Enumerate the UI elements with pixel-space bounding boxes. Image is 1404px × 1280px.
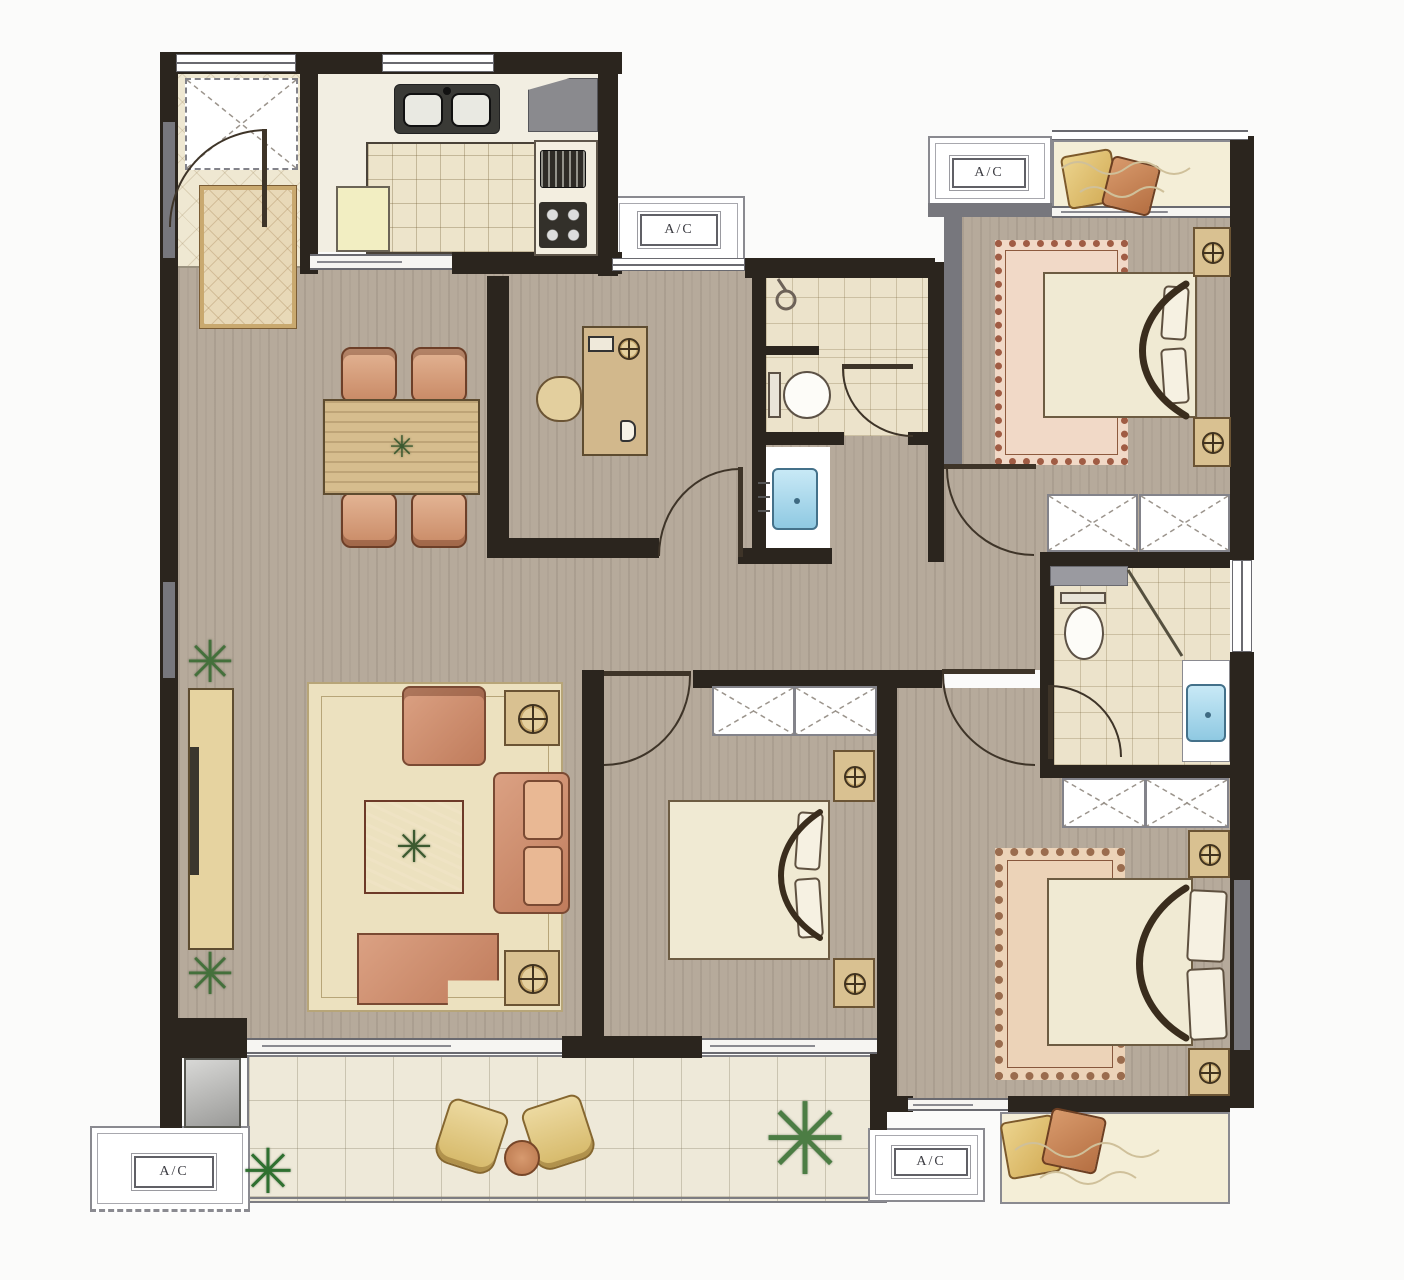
sliding-door-kitchen — [310, 254, 452, 270]
wall-left-gray-1 — [163, 122, 175, 258]
wall-trbed-left — [944, 205, 962, 468]
lamp-icon — [518, 964, 548, 994]
side-table-2 — [504, 950, 560, 1006]
master-pillow-2 — [1186, 967, 1228, 1041]
wall-hall-bath-right — [928, 262, 944, 562]
ac-label-bottom-left: A/C — [134, 1156, 214, 1188]
wall-left-bottom — [160, 1058, 182, 1128]
trbed-pillow-2 — [1160, 347, 1190, 405]
coffee-table-plant-icon: ✳ — [396, 826, 433, 870]
bathroom-sink-central — [772, 468, 818, 530]
trbed-pillow-1 — [1160, 285, 1190, 341]
wall-bath-bottom-a — [752, 432, 844, 445]
plant-icon: ✳ — [242, 1141, 294, 1203]
rbath-shelf — [1050, 566, 1128, 586]
wardrobe-midbed-1 — [712, 686, 795, 736]
faucet-icon — [443, 87, 451, 95]
lamp-icon — [1199, 844, 1221, 866]
balcony-round-table — [504, 1140, 540, 1176]
dining-chair-1 — [341, 347, 397, 403]
side-table-1 — [504, 690, 560, 746]
kitchen-hood-icon — [540, 150, 586, 188]
wall-bath-divider — [763, 346, 819, 355]
palm-plant-icon: ✳ — [763, 1090, 847, 1190]
floor-plan: ✳ ✳ ✳ ✳ ✳ — [0, 0, 1404, 1280]
midbed-pillow-1 — [794, 811, 824, 871]
wall-left-gray-2 — [163, 582, 175, 678]
wall-study-bottom — [487, 538, 659, 558]
toilet-bowl-right — [1064, 606, 1104, 660]
monitor-icon — [588, 336, 614, 352]
water-heater — [184, 1058, 241, 1128]
bathroom-sink-right — [1186, 684, 1226, 742]
lamp-icon — [844, 973, 866, 995]
wall-midbed-left — [582, 670, 604, 1042]
window-rbath-east — [1232, 560, 1252, 652]
master-balcony-cushion-2 — [1041, 1107, 1108, 1175]
midbed-nightstand-2 — [833, 958, 875, 1008]
kitchen-stove-icon — [539, 202, 587, 248]
plant-icon: ✳ — [186, 945, 235, 1003]
ac-label-text: A/C — [974, 165, 1003, 181]
plant-icon: ✳ — [186, 633, 235, 691]
wardrobe-trbed-1 — [1047, 494, 1138, 552]
window-study-north — [612, 258, 745, 271]
sofa-cushion — [523, 780, 563, 840]
dining-chair-2 — [411, 347, 467, 403]
sliding-door-living-balcony — [247, 1038, 562, 1054]
towel-bars-icon — [758, 478, 770, 518]
master-bed — [1047, 878, 1193, 1046]
wardrobe-master-2 — [1145, 778, 1229, 828]
toilet-tank-central — [768, 372, 781, 418]
centerpiece-plant-icon: ✳ — [389, 433, 414, 463]
wall-master-top — [897, 670, 942, 688]
ac-label-bottom-right: A/C — [894, 1148, 968, 1176]
ac-label-top-right: A/C — [952, 158, 1026, 188]
wall-rbath-bottom — [1040, 765, 1230, 778]
trbed-nightstand-1 — [1193, 227, 1231, 277]
midbed-pillow-2 — [794, 877, 824, 939]
wall-balcony-right-stub — [870, 1052, 887, 1130]
wall-midbed-bottom — [562, 1036, 702, 1058]
wall-bath-top — [745, 258, 935, 278]
window-top-kitchen — [382, 54, 494, 72]
wall-balcony-left-block — [160, 1018, 247, 1058]
wall-study-left — [487, 276, 509, 558]
midbed-nightstand-1 — [833, 750, 875, 802]
lamp-icon — [518, 704, 548, 734]
master-nightstand-2 — [1188, 1048, 1230, 1096]
sliding-door-master-balcony — [908, 1098, 1008, 1111]
wall-entry-kitchen — [300, 74, 318, 274]
wardrobe-trbed-2 — [1139, 494, 1230, 552]
window-top-entry — [176, 54, 296, 72]
lamp-icon — [1199, 1062, 1221, 1084]
lamp-icon — [1202, 242, 1224, 264]
desk-lamp-icon — [618, 338, 640, 360]
railing-balcony-top-right — [1052, 130, 1248, 140]
kitchen-cabinet-left — [336, 186, 390, 252]
wall-midbed-right — [877, 670, 897, 1110]
lamp-icon — [844, 766, 866, 788]
ac-label-text: A/C — [916, 1154, 945, 1170]
ac-label-top-middle: A/C — [640, 214, 718, 246]
wall-trbed-top — [928, 203, 1052, 217]
wall-master-bottom — [1008, 1096, 1230, 1112]
sliding-door-midbed-balcony — [702, 1038, 877, 1054]
dining-chair-3 — [341, 492, 397, 548]
dining-chair-4 — [411, 492, 467, 548]
ac-label-text: A/C — [159, 1164, 188, 1180]
wardrobe-midbed-2 — [794, 686, 877, 736]
wardrobe-master-1 — [1062, 778, 1146, 828]
floor-hall-east — [944, 556, 1040, 670]
sofa-cushion — [523, 846, 563, 906]
lamp-icon — [1202, 432, 1224, 454]
book-icon — [620, 420, 636, 442]
wall-alcove-bottom — [738, 548, 832, 564]
wall-kitchen-right — [598, 52, 618, 276]
trbed-nightstand-2 — [1193, 417, 1231, 467]
study-desk — [582, 326, 648, 456]
sofa — [493, 772, 570, 914]
study-chair — [536, 376, 582, 422]
ac-label-text: A/C — [664, 222, 693, 238]
master-pillow-1 — [1186, 889, 1228, 963]
armchair — [402, 686, 486, 766]
floor-bath-shower — [766, 276, 928, 350]
tv-icon — [190, 747, 199, 875]
wall-right-gray — [1234, 880, 1250, 1050]
kitchen-sink — [394, 84, 500, 134]
toilet-tank-right — [1060, 592, 1106, 604]
wall-right-middle — [1230, 652, 1254, 778]
toilet-bowl-central — [783, 371, 831, 419]
master-nightstand-1 — [1188, 830, 1230, 878]
wall-right-upper — [1230, 136, 1254, 560]
